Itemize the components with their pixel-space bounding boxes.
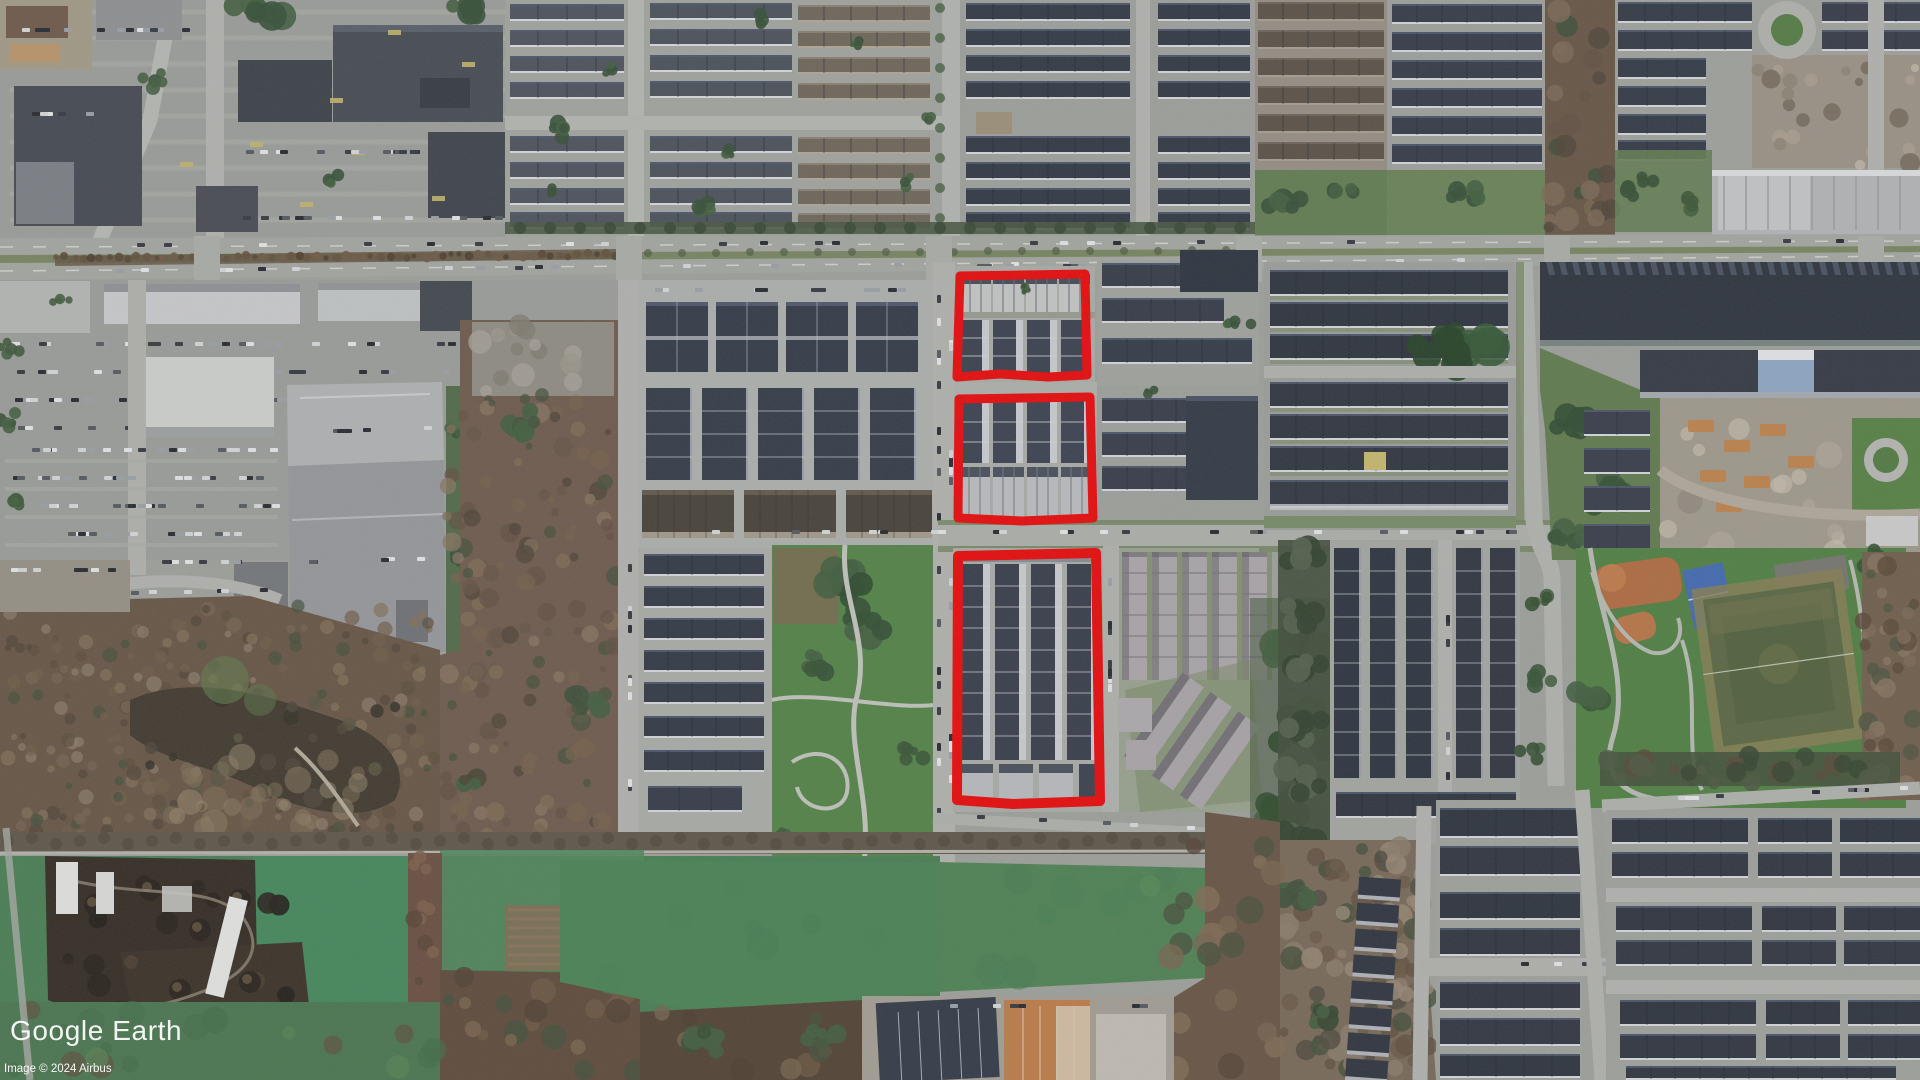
svg-text:Image © 2024 Airbus: Image © 2024 Airbus <box>4 1063 112 1075</box>
svg-text:Google Earth: Google Earth <box>10 1015 182 1046</box>
